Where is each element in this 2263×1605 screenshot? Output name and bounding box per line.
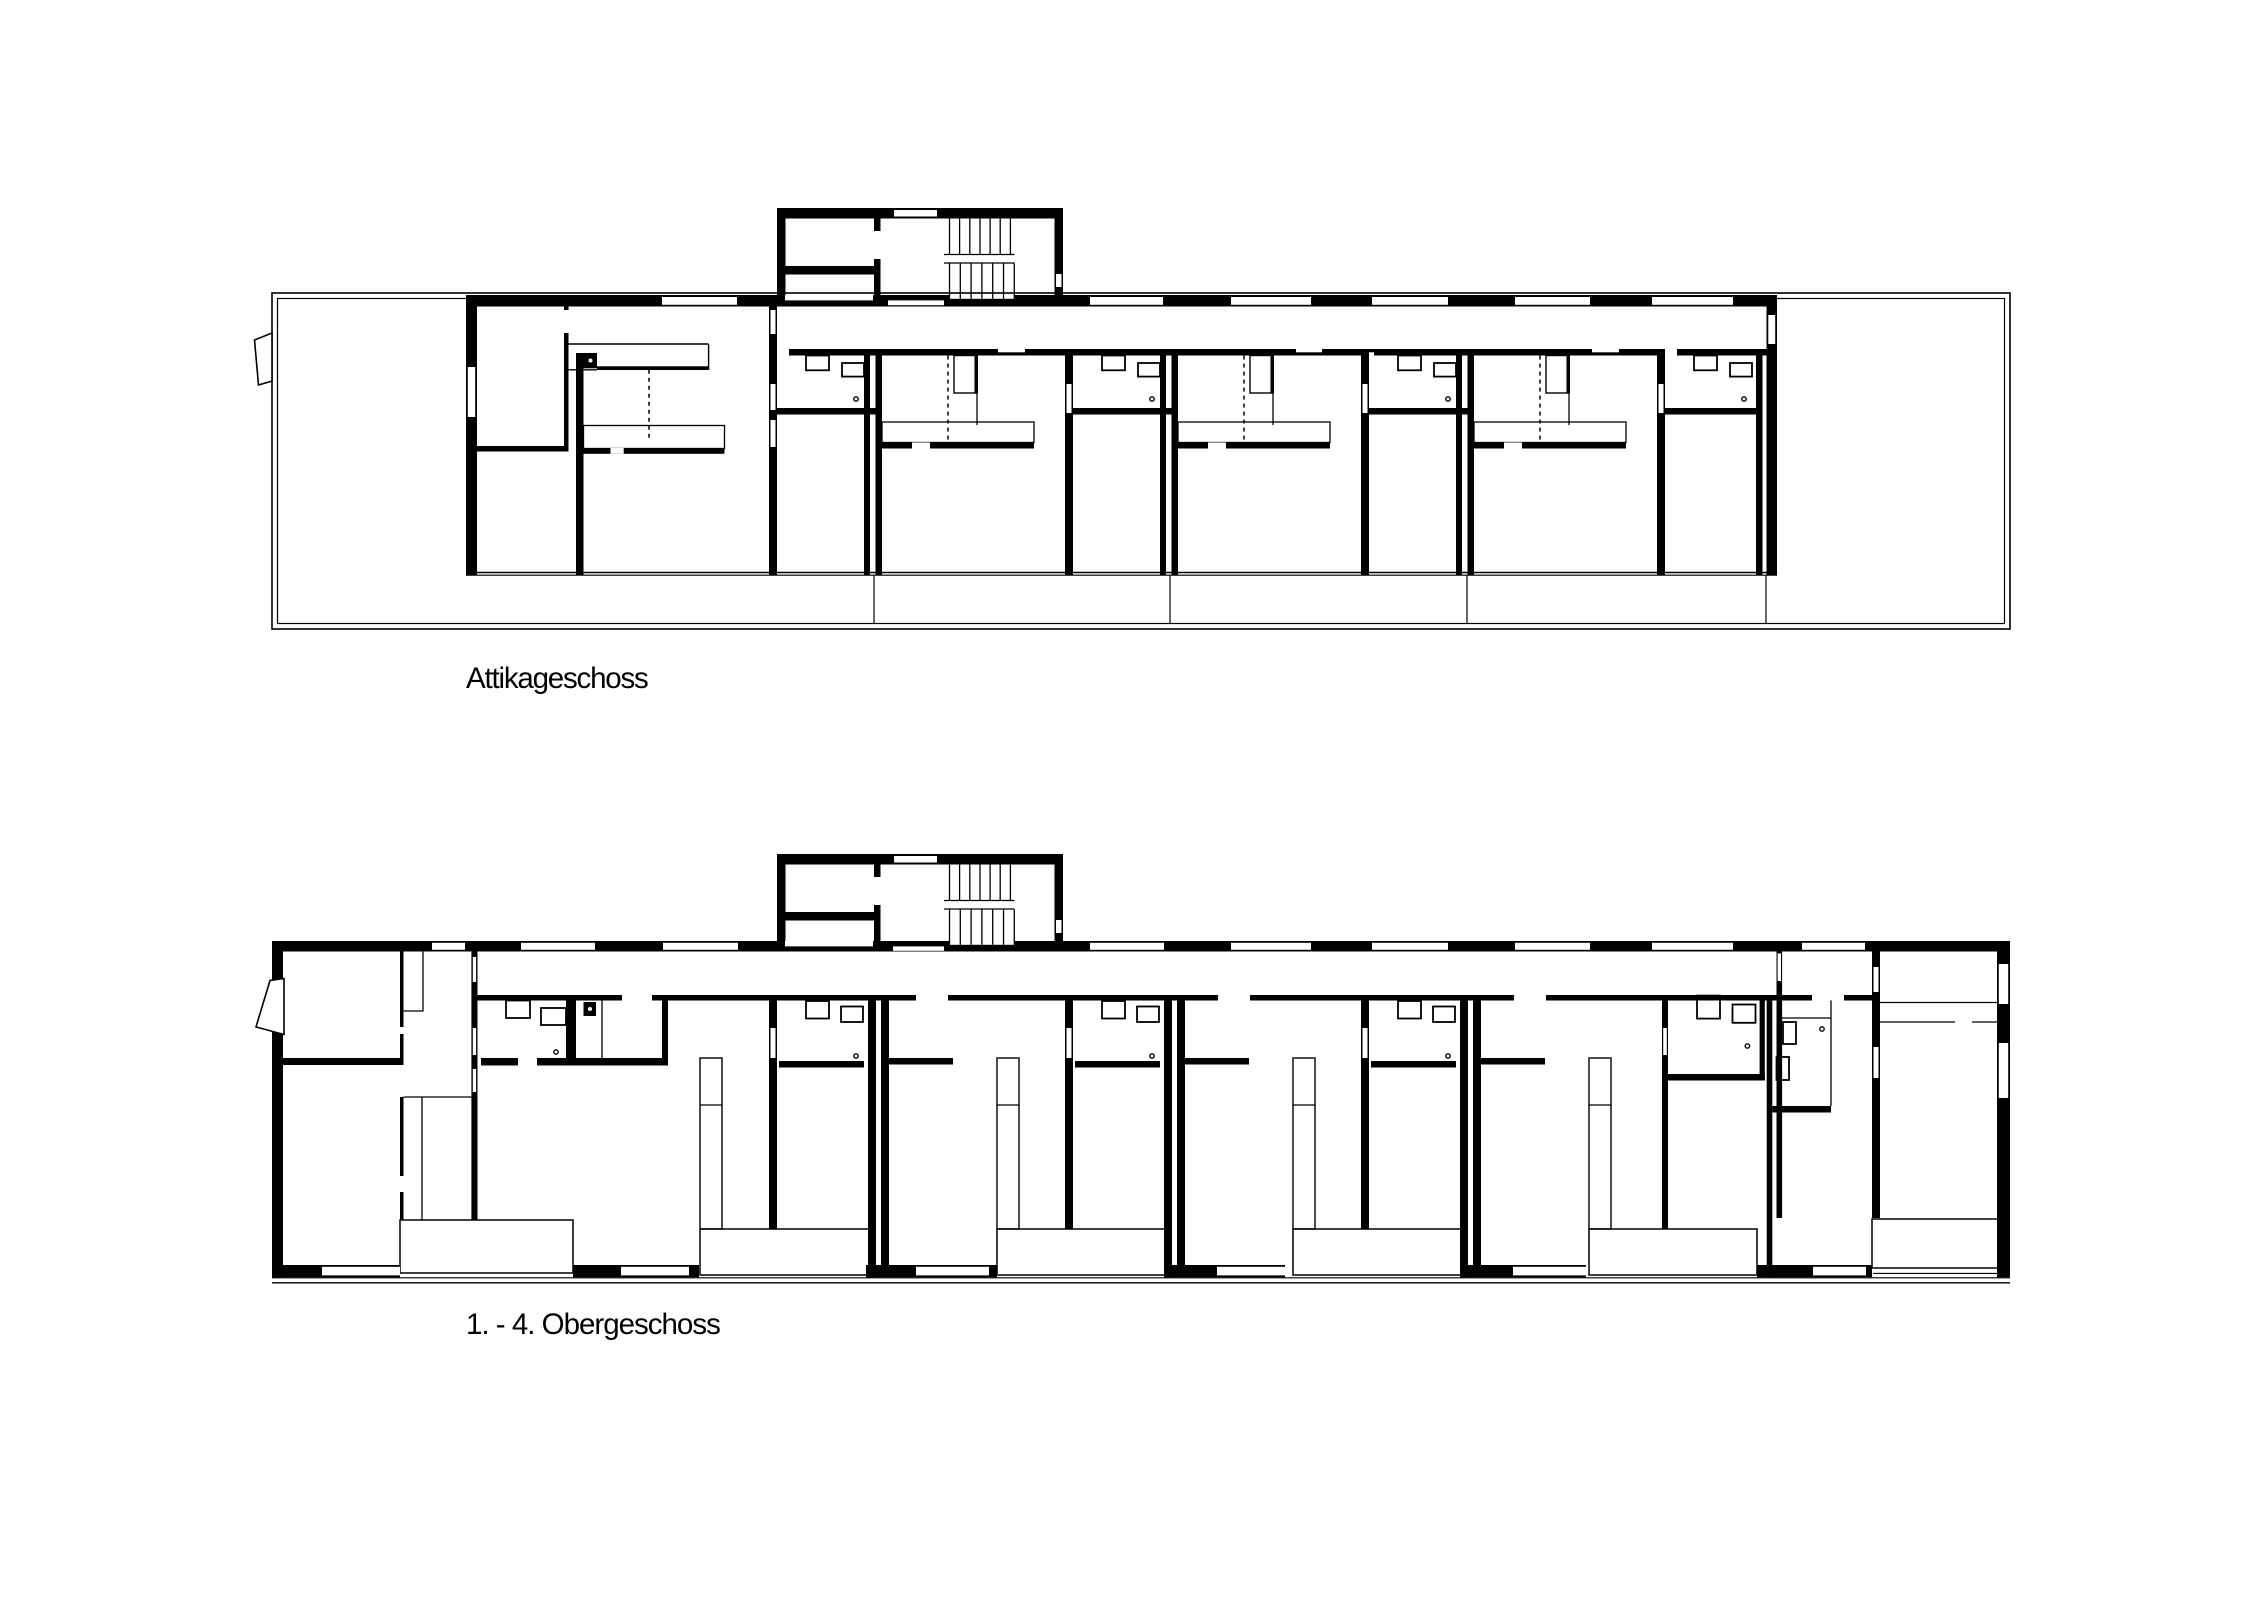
svg-text:1. - 4. Obergeschoss: 1. - 4. Obergeschoss	[466, 1308, 720, 1341]
svg-text:Attikageschoss: Attikageschoss	[466, 662, 648, 695]
